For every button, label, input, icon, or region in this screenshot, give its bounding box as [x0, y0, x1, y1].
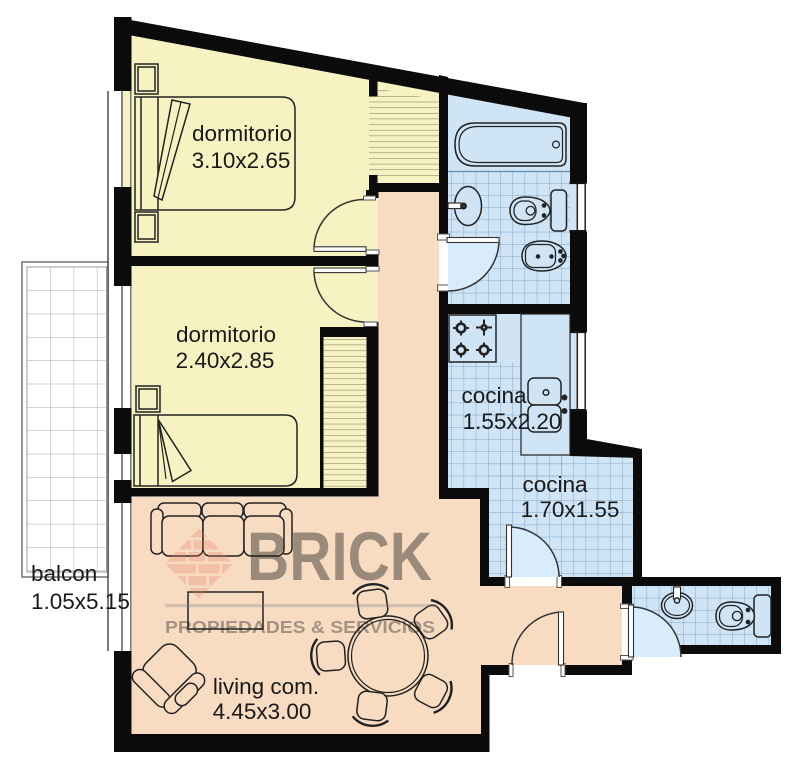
svg-text:4.45x3.00: 4.45x3.00 [213, 699, 312, 724]
svg-text:1.70x1.55: 1.70x1.55 [521, 497, 620, 522]
svg-text:1.05x5.15: 1.05x5.15 [31, 589, 130, 614]
svg-text:dormitorio: dormitorio [192, 121, 292, 146]
svg-text:3.10x2.65: 3.10x2.65 [192, 148, 291, 173]
svg-text:PROPIEDADES & SERVICIOS: PROPIEDADES & SERVICIOS [165, 617, 435, 637]
svg-text:BRICK: BRICK [247, 518, 432, 595]
svg-text:cocina: cocina [522, 472, 588, 497]
svg-text:balcon: balcon [31, 561, 97, 586]
svg-text:dormitorio: dormitorio [176, 322, 276, 347]
svg-text:living com.: living com. [213, 674, 319, 699]
svg-text:cocina: cocina [461, 383, 527, 408]
svg-text:2.40x2.85: 2.40x2.85 [176, 348, 275, 373]
svg-text:1.55x2.20: 1.55x2.20 [463, 409, 562, 434]
